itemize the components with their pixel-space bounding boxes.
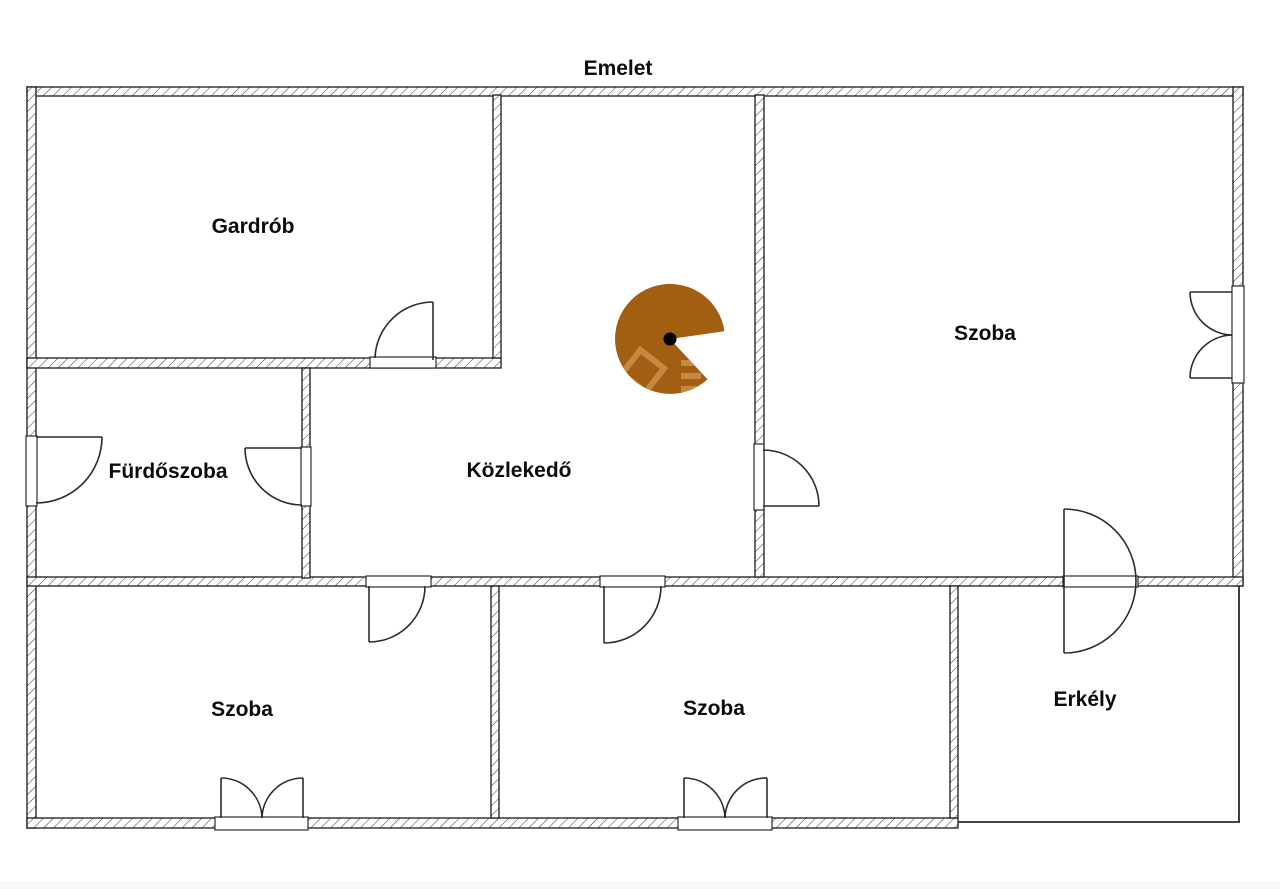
- camera-viewpoint-indicator: [615, 284, 724, 394]
- page-title: Emelet: [584, 57, 653, 80]
- opening-hall-szoba-door: [754, 444, 764, 510]
- opening-french-door-center: [678, 817, 772, 830]
- room-label-gardrob: Gardrób: [212, 215, 295, 238]
- opening-szoba-bc-door: [600, 576, 665, 587]
- room-label-szoba-top: Szoba: [954, 322, 1016, 345]
- door-arc-gardrob: [375, 302, 433, 358]
- opening-gardrob-door: [370, 357, 436, 368]
- door-arc-szoba-bl: [369, 586, 425, 642]
- french-door-center-arc-a: [684, 778, 725, 818]
- walls: [27, 87, 1243, 828]
- wall-gardrob-right: [493, 95, 501, 358]
- window-arc-bottom: [1190, 335, 1232, 378]
- opening-erkely-door: [1063, 576, 1138, 587]
- door-arc-bathroom-ext: [36, 437, 102, 503]
- watermark-bar-2: [681, 373, 701, 379]
- french-door-center-arc-b: [725, 778, 767, 818]
- room-label-szoba-bottom-center: Szoba: [683, 697, 745, 720]
- wall-bottom-rooms-divider-right: [950, 586, 958, 818]
- opening-bathroom-hall-door: [301, 447, 311, 506]
- floor-plan-svg: Emelet Gardrób Szoba Fürdőszoba Közleked…: [0, 0, 1280, 889]
- room-label-furdoszoba: Fürdőszoba: [109, 460, 228, 483]
- floor-plan: Emelet Gardrób Szoba Fürdőszoba Közleked…: [0, 0, 1280, 889]
- wall-outer-bottom: [27, 818, 958, 828]
- camera-position-dot: [664, 333, 677, 346]
- door-arc-szoba-bc: [604, 586, 661, 643]
- door-arc-hall-szoba: [763, 450, 819, 506]
- room-label-szoba-bottom-left: Szoba: [211, 698, 273, 721]
- french-door-left-arc-b: [262, 778, 303, 818]
- watermark-bar-3: [681, 386, 697, 392]
- bottom-strip: [0, 881, 1280, 889]
- room-label-erkely: Erkély: [1053, 688, 1116, 711]
- french-door-left-arc-a: [221, 778, 262, 818]
- opening-french-door-left: [215, 817, 308, 830]
- opening-bathroom-exterior-door: [26, 436, 37, 506]
- door-arc-bathroom-hall: [245, 448, 302, 505]
- wall-bottom-rooms-divider-left: [491, 586, 499, 818]
- opening-szoba-bl-door: [366, 576, 431, 587]
- room-label-kozlekedo: Közlekedő: [466, 459, 571, 482]
- opening-szoba-top-window: [1232, 286, 1244, 383]
- wall-outer-top: [27, 87, 1243, 96]
- watermark-bar-1: [681, 360, 701, 366]
- window-arc-top: [1190, 292, 1232, 335]
